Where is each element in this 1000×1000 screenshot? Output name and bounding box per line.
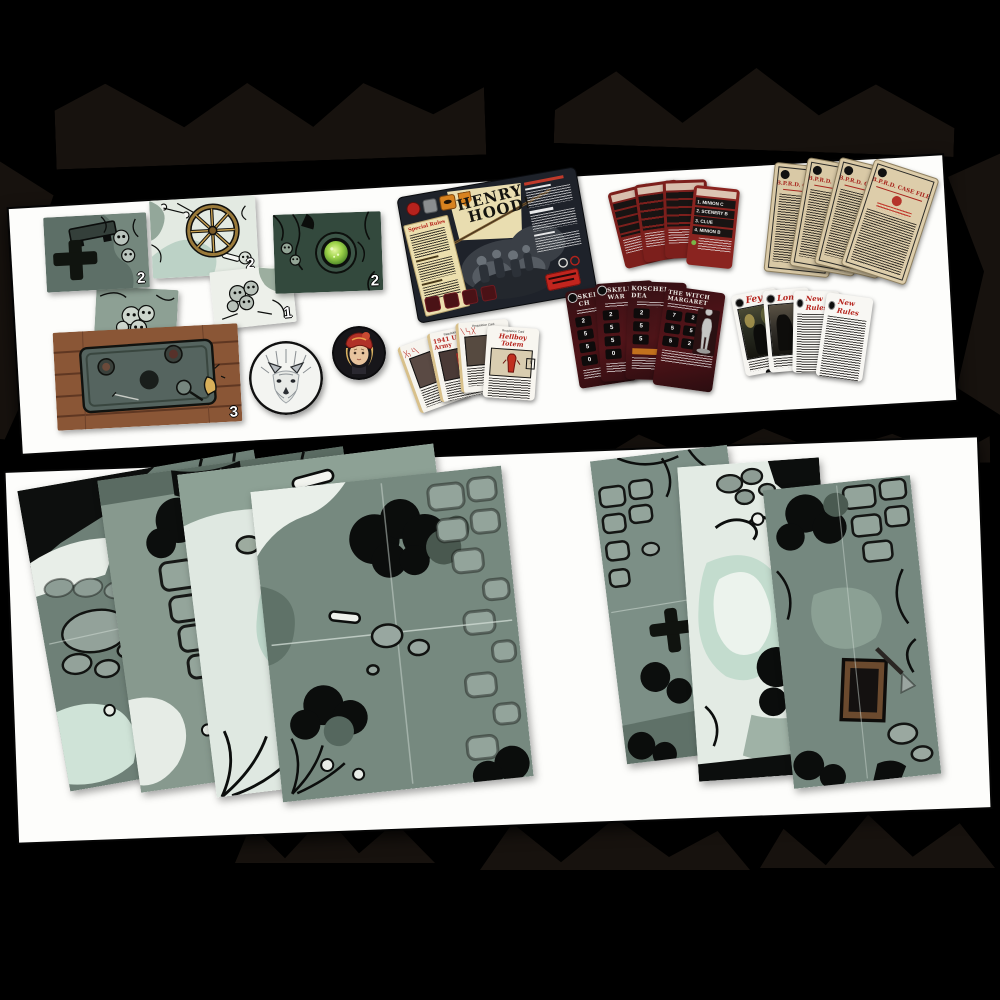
requisition-card-hellboy-totem: Requisition Card Hellboy Totem 1 [483, 325, 540, 400]
spawn-card-front: 1. MINION C 2. SCENERY B 3. CLUE 4. MINI… [686, 185, 740, 269]
spawn-icon-green [691, 240, 696, 245]
glowing-well-tile: 2 [273, 211, 384, 294]
stat-box: 5 [603, 323, 620, 334]
tile-count: 2 [370, 272, 379, 289]
background-art-shape [54, 71, 487, 170]
tile-count: 1 [283, 304, 293, 322]
spawn-footer-text [698, 237, 732, 252]
faction-icon [567, 292, 578, 303]
card-text [487, 377, 531, 400]
stat-box: 2 [633, 308, 649, 319]
stat-box: 5 [664, 323, 681, 335]
stat-box: 5 [577, 328, 594, 340]
new-rules-text [819, 315, 867, 381]
stat-box: 5 [604, 335, 621, 346]
requisition-title: Hellboy Totem [486, 332, 539, 349]
cost-box: 1 [526, 358, 536, 370]
deck-icon [796, 298, 803, 307]
damage-box [443, 292, 461, 310]
stat-box: 5 [579, 341, 596, 353]
tile-count: 3 [229, 403, 238, 420]
cartwheel-tile: 2 [149, 195, 259, 278]
girl-portrait-token [332, 326, 386, 380]
deck-icon [734, 297, 745, 308]
game-board-courtyard [250, 466, 533, 803]
stat-box: 0 [581, 354, 598, 366]
damage-box [461, 288, 479, 306]
background-art-shape [760, 812, 995, 868]
game-board-open-grave [763, 475, 942, 789]
new-rules-title: New Rules [836, 297, 870, 319]
white-wolf-token [249, 341, 323, 415]
damage-box [424, 295, 442, 313]
faction-icon [597, 285, 608, 296]
background-art-shape [480, 818, 750, 870]
deck-icon [766, 294, 776, 304]
stat-box: 5 [633, 321, 649, 332]
stat-box: 2 [575, 315, 592, 327]
stat-box: 5 [662, 335, 679, 347]
wooden-table-tile: 3 [53, 323, 243, 431]
tile-count: 2 [137, 269, 146, 286]
stat-box: 0 [605, 348, 622, 359]
deck-icon [828, 300, 837, 310]
grave-cross-tile: 2 [43, 212, 150, 292]
stat-box: 5 [633, 334, 649, 345]
blank-slot-icon [422, 198, 438, 214]
background-art-shape [948, 150, 1000, 420]
stat-box: 7 [665, 310, 682, 322]
product-photo-stage: 1 2 [0, 0, 1000, 1000]
stat-box: 2 [603, 310, 620, 321]
background-art-shape [554, 61, 957, 157]
damage-box [480, 284, 498, 302]
